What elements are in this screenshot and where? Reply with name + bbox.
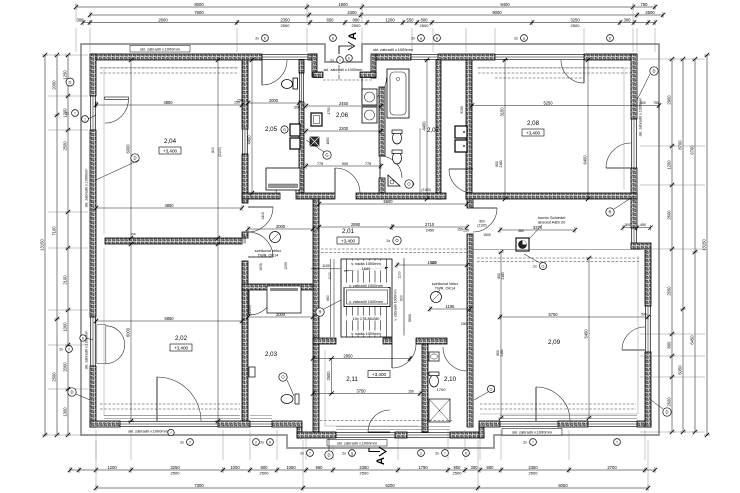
svg-text:6850: 6850 <box>164 316 174 321</box>
svg-text:b: b <box>82 337 84 341</box>
svg-text:800: 800 <box>261 465 269 470</box>
svg-text:6000: 6000 <box>126 327 131 337</box>
svg-text:3250: 3250 <box>170 465 180 470</box>
svg-text:3050: 3050 <box>243 236 247 244</box>
svg-text:D: D <box>327 453 330 458</box>
svg-text:f: f <box>340 59 341 63</box>
svg-text:300: 300 <box>471 465 479 470</box>
svg-text:2x: 2x <box>411 37 415 41</box>
svg-text:150: 150 <box>237 99 243 103</box>
svg-text:4400: 4400 <box>422 121 427 131</box>
svg-text:750: 750 <box>653 101 659 105</box>
svg-text:5450: 5450 <box>584 329 589 339</box>
svg-text:960: 960 <box>316 465 324 470</box>
svg-text:f: f <box>171 431 172 435</box>
svg-text:1100: 1100 <box>322 264 330 268</box>
svg-text:600: 600 <box>400 295 404 301</box>
svg-text:a: a <box>420 37 422 41</box>
svg-text:10x 178,86/280: 10x 178,86/280 <box>353 316 381 321</box>
svg-text:7300: 7300 <box>194 483 204 488</box>
svg-text:skl. zábradlí v.1000mm: skl. zábradlí v.1000mm <box>85 169 89 208</box>
svg-text:v. nadla 1000mm: v. nadla 1000mm <box>351 331 381 336</box>
svg-text:b: b <box>609 37 611 41</box>
svg-text:1415: 1415 <box>261 212 265 220</box>
svg-text:660: 660 <box>326 295 330 301</box>
svg-text:2850: 2850 <box>343 353 353 358</box>
svg-text:1820: 1820 <box>427 260 437 265</box>
svg-text:300: 300 <box>624 17 632 22</box>
svg-text:b: b <box>264 37 266 41</box>
svg-text:2,10: 2,10 <box>444 376 457 383</box>
svg-text:2450: 2450 <box>426 229 434 233</box>
svg-text:800: 800 <box>667 341 672 349</box>
svg-text:300: 300 <box>294 106 300 110</box>
svg-text:2500: 2500 <box>360 471 370 476</box>
svg-text:z: z <box>420 452 422 456</box>
svg-text:2,08: 2,08 <box>527 120 540 127</box>
svg-text:9000: 9000 <box>492 10 502 15</box>
svg-text:(2100): (2100) <box>477 224 486 228</box>
svg-text:800: 800 <box>353 17 361 22</box>
svg-text:800: 800 <box>421 17 429 22</box>
svg-text:2600: 2600 <box>667 397 672 407</box>
svg-text:1200: 1200 <box>107 465 117 470</box>
svg-text:(2100): (2100) <box>421 188 430 192</box>
svg-text:2500: 2500 <box>171 471 181 476</box>
svg-text:2x: 2x <box>180 441 184 445</box>
svg-text:+3,400: +3,400 <box>341 238 356 243</box>
svg-text:j: j <box>84 118 86 122</box>
svg-text:skl. zábradlí v.1000mm: skl. zábradlí v.1000mm <box>337 441 377 446</box>
svg-text:2x: 2x <box>523 441 527 445</box>
svg-text:2x: 2x <box>533 265 537 269</box>
svg-text:b: b <box>332 37 334 41</box>
svg-text:TWR, OK14: TWR, OK14 <box>258 254 278 258</box>
svg-text:8700: 8700 <box>678 140 683 150</box>
svg-text:6450: 6450 <box>690 335 695 345</box>
svg-text:f: f <box>533 441 534 445</box>
svg-text:f: f <box>190 441 191 445</box>
svg-text:775: 775 <box>317 162 323 166</box>
svg-text:150: 150 <box>408 390 414 394</box>
svg-text:(2100): (2100) <box>218 147 222 157</box>
svg-text:D: D <box>69 80 72 85</box>
svg-text:2x: 2x <box>260 441 264 445</box>
svg-text:800: 800 <box>211 147 215 153</box>
svg-text:2500: 2500 <box>420 23 430 28</box>
svg-text:1250: 1250 <box>63 70 68 80</box>
svg-text:2500: 2500 <box>352 23 362 28</box>
svg-text:5600: 5600 <box>408 314 412 322</box>
svg-text:1300: 1300 <box>63 407 68 417</box>
svg-text:3250: 3250 <box>570 17 580 22</box>
svg-text:g: g <box>351 452 353 456</box>
svg-text:2,07: 2,07 <box>427 127 440 134</box>
svg-text:1660: 1660 <box>362 266 371 271</box>
svg-text:svetlovod Velux: svetlovod Velux <box>255 249 281 253</box>
svg-text:2200: 2200 <box>339 126 349 131</box>
svg-text:150: 150 <box>461 322 467 326</box>
svg-text:f: f <box>445 452 446 456</box>
svg-text:5600: 5600 <box>383 199 393 204</box>
svg-text:R: R <box>318 310 321 315</box>
svg-text:2350: 2350 <box>359 465 369 470</box>
svg-text:4850: 4850 <box>164 203 174 208</box>
svg-text:+3,400: +3,400 <box>526 130 541 135</box>
svg-text:450: 450 <box>640 223 646 227</box>
svg-text:1100: 1100 <box>328 272 332 279</box>
svg-text:2x: 2x <box>514 37 518 41</box>
svg-text:2180: 2180 <box>499 160 503 167</box>
svg-text:+3,400: +3,400 <box>372 372 387 377</box>
svg-text:5250: 5250 <box>543 100 553 105</box>
svg-text:550: 550 <box>407 17 415 22</box>
svg-text:500: 500 <box>641 313 647 317</box>
svg-text:2700: 2700 <box>607 465 617 470</box>
svg-text:1195: 1195 <box>446 304 456 309</box>
svg-text:380: 380 <box>518 229 524 233</box>
svg-text:TWR, OK14: TWR, OK14 <box>435 287 455 291</box>
svg-text:2100: 2100 <box>63 275 68 285</box>
svg-text:3370: 3370 <box>533 225 543 230</box>
svg-text:2x: 2x <box>330 59 334 63</box>
svg-text:R: R <box>608 210 611 215</box>
svg-text:skl. zábradlí v.1000mm: skl. zábradlí v.1000mm <box>512 430 552 435</box>
svg-text:skl. zábradlí v.1000mm: skl. zábradlí v.1000mm <box>324 68 363 72</box>
svg-text:A: A <box>375 457 387 465</box>
svg-text:13150: 13150 <box>40 239 45 251</box>
svg-text:2,09: 2,09 <box>548 339 561 346</box>
svg-text:3150: 3150 <box>500 107 505 117</box>
svg-text:2,03: 2,03 <box>265 351 278 358</box>
svg-text:650: 650 <box>327 17 335 22</box>
svg-text:6050: 6050 <box>558 483 568 488</box>
svg-text:f: f <box>69 348 70 352</box>
svg-text:800: 800 <box>454 465 462 470</box>
svg-text:2600: 2600 <box>158 17 168 22</box>
svg-text:2500: 2500 <box>529 471 539 476</box>
svg-text:6400: 6400 <box>583 155 588 165</box>
svg-text:2450: 2450 <box>339 101 349 106</box>
svg-text:2500: 2500 <box>645 10 655 15</box>
svg-text:2000: 2000 <box>63 362 68 372</box>
svg-text:A: A <box>347 32 359 40</box>
svg-text:2710: 2710 <box>425 222 435 227</box>
svg-text:z: z <box>255 441 257 445</box>
svg-text:2x: 2x <box>435 452 439 456</box>
svg-text:2,02: 2,02 <box>175 335 188 342</box>
svg-text:3750: 3750 <box>356 388 366 393</box>
svg-text:7600: 7600 <box>194 10 204 15</box>
svg-text:O: O <box>283 128 286 132</box>
svg-text:1790: 1790 <box>418 465 428 470</box>
svg-text:775: 775 <box>365 162 371 166</box>
svg-text:900: 900 <box>342 162 348 166</box>
svg-text:2000: 2000 <box>276 224 286 229</box>
svg-text:150: 150 <box>457 228 463 232</box>
svg-text:2x: 2x <box>386 239 390 243</box>
svg-text:6050: 6050 <box>678 365 683 375</box>
svg-text:1200: 1200 <box>667 160 672 170</box>
svg-text:2600: 2600 <box>667 210 672 220</box>
svg-text:h: h <box>269 441 271 445</box>
svg-text:+3,400: +3,400 <box>163 148 178 153</box>
svg-text:6200: 6200 <box>385 483 395 488</box>
svg-text:2900: 2900 <box>667 95 672 105</box>
svg-text:f: f <box>75 112 76 116</box>
svg-text:2890: 2890 <box>351 222 361 227</box>
svg-text:1700: 1700 <box>437 387 447 392</box>
svg-text:absolut ABS 20: absolut ABS 20 <box>538 220 566 225</box>
svg-text:9400: 9400 <box>500 2 510 7</box>
svg-text:2500: 2500 <box>571 23 581 28</box>
svg-text:8000: 8000 <box>194 2 204 7</box>
svg-text:skl. zábradlí v.1000mm: skl. zábradlí v.1000mm <box>140 47 180 52</box>
svg-text:2180: 2180 <box>500 349 504 356</box>
svg-text:1900: 1900 <box>338 2 348 7</box>
svg-text:D: D <box>665 410 668 415</box>
svg-text:2,01: 2,01 <box>342 228 355 235</box>
svg-text:750: 750 <box>641 2 649 7</box>
svg-text:v. zábradlí 1000mm: v. zábradlí 1000mm <box>349 283 383 288</box>
svg-text:6000: 6000 <box>126 144 131 154</box>
svg-text:2300: 2300 <box>347 10 357 15</box>
svg-text:O: O <box>542 265 545 269</box>
svg-text:2500: 2500 <box>260 471 270 476</box>
svg-text:2500: 2500 <box>63 141 68 151</box>
svg-text:1000: 1000 <box>230 465 240 470</box>
svg-text:1000: 1000 <box>63 322 68 332</box>
svg-text:skl. zábradlí v.1000mm: skl. zábradlí v.1000mm <box>128 429 168 434</box>
svg-text:2500: 2500 <box>326 371 331 381</box>
svg-text:v. zábradlí 1000mm: v. zábradlí 1000mm <box>394 289 398 320</box>
svg-text:2000: 2000 <box>276 312 286 317</box>
svg-text:skl. zábradlí v.1000mm: skl. zábradlí v.1000mm <box>639 98 643 137</box>
svg-text:O: O <box>490 388 493 392</box>
svg-text:2350: 2350 <box>280 17 290 22</box>
svg-text:2500: 2500 <box>281 23 291 28</box>
svg-text:2180: 2180 <box>501 272 505 279</box>
svg-text:v. zábradlí 1000mm: v. zábradlí 1000mm <box>349 299 383 304</box>
svg-text:4450: 4450 <box>247 135 252 145</box>
svg-text:1200: 1200 <box>385 17 395 22</box>
svg-text:b: b <box>348 57 350 61</box>
svg-text:+3,400: +3,400 <box>174 345 189 350</box>
svg-text:7100: 7100 <box>52 226 57 236</box>
svg-text:2000: 2000 <box>52 80 57 90</box>
svg-text:skl. zábradlí v.1000mm: skl. zábradlí v.1000mm <box>373 47 413 52</box>
svg-text:D: D <box>70 390 73 395</box>
svg-text:2350: 2350 <box>528 465 538 470</box>
svg-text:2x: 2x <box>300 452 304 456</box>
svg-text:1750: 1750 <box>327 107 331 114</box>
svg-text:150: 150 <box>130 232 135 236</box>
svg-text:1650: 1650 <box>326 137 330 144</box>
svg-text:2x: 2x <box>65 112 69 116</box>
svg-text:800: 800 <box>487 465 495 470</box>
svg-text:h: h <box>465 452 467 456</box>
svg-text:1500: 1500 <box>483 233 491 237</box>
svg-text:5700: 5700 <box>548 312 558 317</box>
svg-text:b: b <box>436 37 438 41</box>
svg-text:300: 300 <box>77 17 85 22</box>
svg-text:f: f <box>310 452 311 456</box>
svg-text:4850: 4850 <box>163 100 173 105</box>
svg-text:G: G <box>325 153 328 158</box>
svg-text:1100: 1100 <box>398 271 402 278</box>
svg-text:svetlovod Velux: svetlovod Velux <box>432 282 458 286</box>
svg-text:2000: 2000 <box>269 98 279 103</box>
svg-text:1050: 1050 <box>286 465 296 470</box>
svg-text:2,05: 2,05 <box>265 126 278 133</box>
svg-text:2x: 2x <box>255 37 259 41</box>
svg-text:2,04: 2,04 <box>164 138 177 145</box>
svg-text:3150: 3150 <box>460 106 464 114</box>
svg-text:1200: 1200 <box>284 262 288 270</box>
svg-text:2x: 2x <box>59 348 63 352</box>
svg-text:(2100): (2100) <box>248 305 252 315</box>
svg-text:1635: 1635 <box>259 263 263 271</box>
svg-text:500: 500 <box>625 223 631 227</box>
svg-text:D: D <box>133 156 136 161</box>
svg-text:2x: 2x <box>342 452 346 456</box>
svg-text:2650: 2650 <box>667 286 672 296</box>
svg-text:2500: 2500 <box>453 471 463 476</box>
svg-text:D: D <box>652 69 655 74</box>
svg-text:2,06: 2,06 <box>336 112 349 119</box>
svg-text:2500: 2500 <box>52 372 57 382</box>
svg-text:f: f <box>617 441 618 445</box>
svg-text:a: a <box>523 37 525 41</box>
svg-text:2,11: 2,11 <box>346 376 358 383</box>
svg-text:150: 150 <box>463 229 469 233</box>
